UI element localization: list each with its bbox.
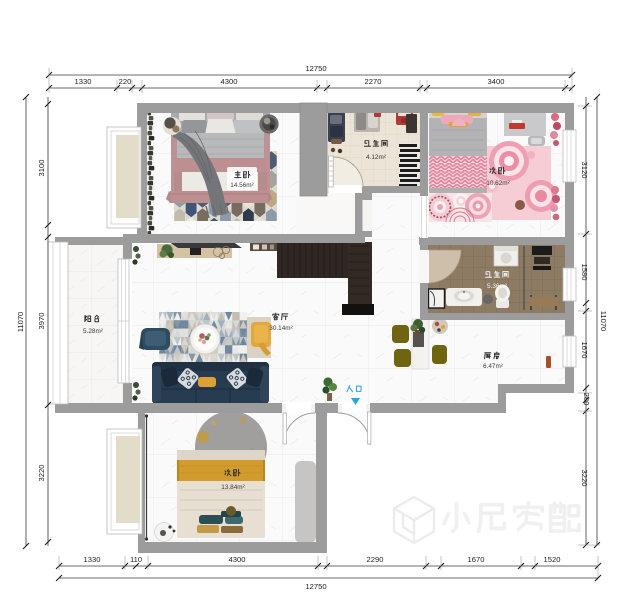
svg-text:12750: 12750 <box>305 64 326 73</box>
svg-text:2290: 2290 <box>367 555 384 564</box>
svg-text:3220: 3220 <box>37 465 46 482</box>
svg-text:13.84m²: 13.84m² <box>221 484 244 491</box>
svg-text:3100: 3100 <box>37 160 46 177</box>
svg-text:4.12m²: 4.12m² <box>366 154 386 161</box>
svg-text:11070: 11070 <box>16 312 25 333</box>
svg-text:1520: 1520 <box>544 555 561 564</box>
svg-text:3970: 3970 <box>37 313 46 330</box>
svg-text:220: 220 <box>119 77 132 86</box>
svg-text:110: 110 <box>130 555 142 564</box>
svg-text:3220: 3220 <box>580 470 589 487</box>
svg-text:14.56m²: 14.56m² <box>230 182 253 189</box>
svg-text:6.47m²: 6.47m² <box>483 363 503 370</box>
svg-text:4300: 4300 <box>221 77 238 86</box>
svg-text:4300: 4300 <box>229 555 246 564</box>
svg-text:2270: 2270 <box>365 77 382 86</box>
svg-text:1670: 1670 <box>468 555 485 564</box>
svg-text:1580: 1580 <box>580 264 589 281</box>
svg-text:11070: 11070 <box>599 311 608 332</box>
svg-text:3400: 3400 <box>488 77 505 86</box>
svg-text:280: 280 <box>582 393 591 406</box>
svg-text:1670: 1670 <box>580 342 589 359</box>
svg-text:12750: 12750 <box>305 582 326 591</box>
svg-text:5.28m²: 5.28m² <box>83 328 103 335</box>
svg-text:1330: 1330 <box>75 77 92 86</box>
svg-text:10.62m²: 10.62m² <box>486 180 509 187</box>
svg-text:5.36m²: 5.36m² <box>487 283 507 290</box>
svg-text:1330: 1330 <box>84 555 101 564</box>
svg-text:30.14m²: 30.14m² <box>269 325 292 332</box>
svg-text:3120: 3120 <box>580 162 589 179</box>
